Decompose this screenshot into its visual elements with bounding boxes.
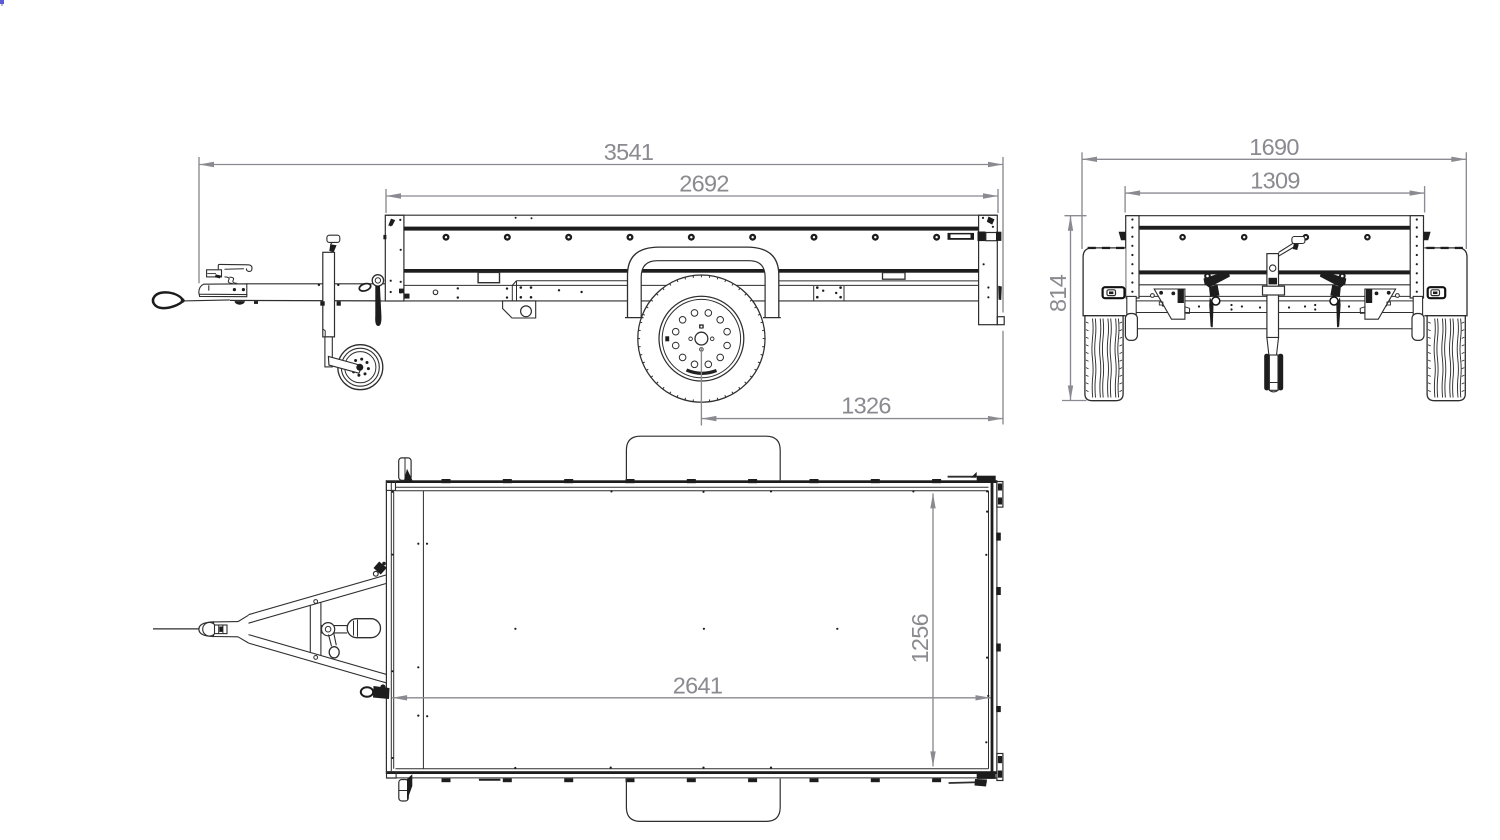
svg-text:2692: 2692 [679,171,728,197]
svg-text:1309: 1309 [1250,168,1299,194]
svg-text:1256: 1256 [907,613,933,663]
svg-text:2641: 2641 [673,673,722,699]
svg-text:1326: 1326 [841,393,891,419]
svg-text:1690: 1690 [1249,134,1299,160]
svg-text:814: 814 [1045,274,1071,312]
svg-text:3541: 3541 [604,139,653,165]
